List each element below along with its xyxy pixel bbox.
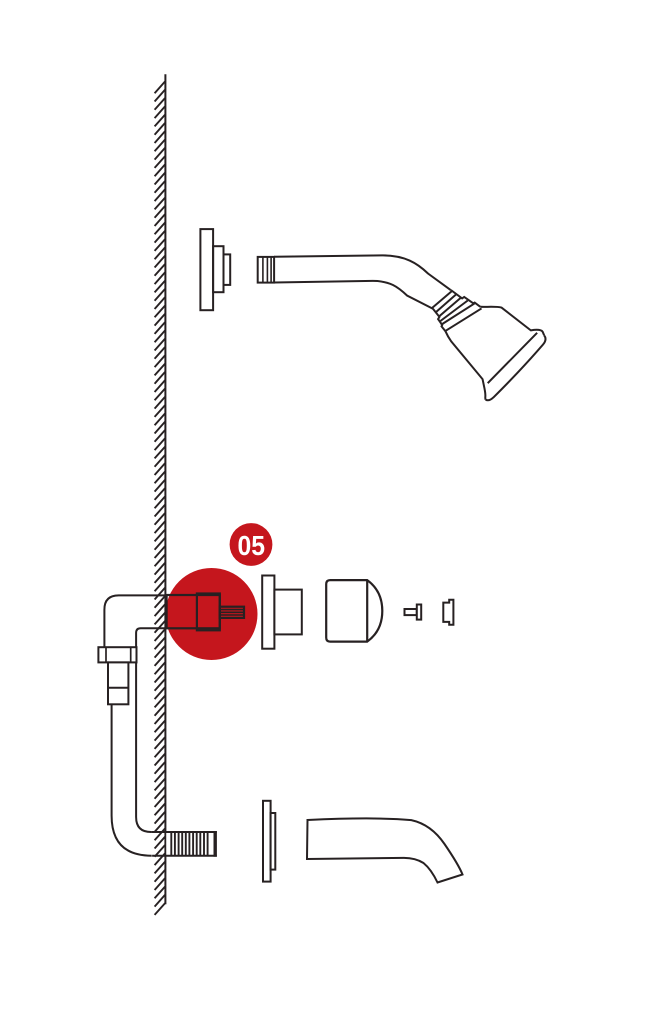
svg-text:05: 05: [238, 530, 266, 561]
